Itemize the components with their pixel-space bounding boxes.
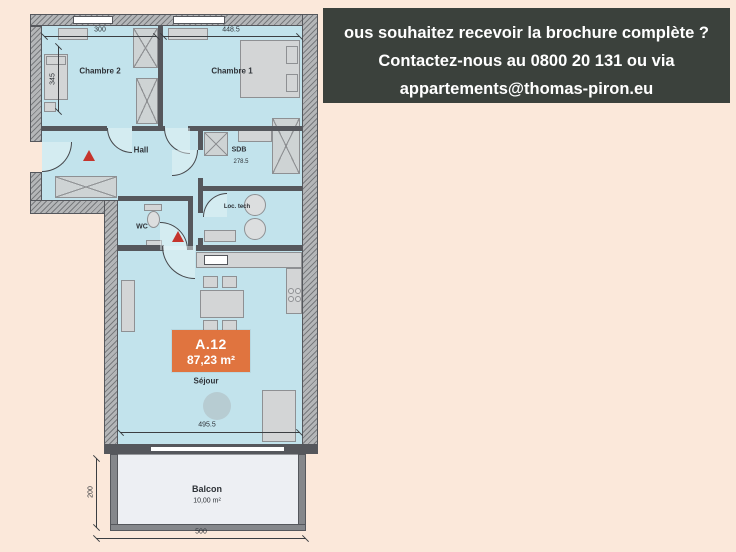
dresser-chambre1: [168, 28, 208, 40]
window-balcony-door: [150, 446, 285, 452]
room-label-chambre1: Chambre 1: [211, 67, 252, 76]
vanity-sdb: [238, 130, 272, 142]
wc-cistern: [144, 204, 162, 211]
dimension-balcon-depth: 200: [88, 486, 95, 498]
shower-sdb: [204, 132, 228, 156]
room-label-chambre2: Chambre 2: [79, 67, 120, 76]
wall-loc-left-1: [198, 191, 203, 213]
wall-hall-top-1: [42, 126, 107, 131]
dimension-chambre2-depth: 345: [50, 73, 57, 85]
wall-sejour-left: [104, 200, 118, 452]
unit-code: A.12: [172, 336, 250, 352]
wc-toilet: [147, 211, 160, 228]
banner-line-1: ous souhaitez recevoir la brochure compl…: [323, 19, 730, 47]
tv-cabinet: [262, 390, 296, 442]
pillow2-chambre1: [286, 74, 298, 92]
balcon-area-label: 10,00 m²: [193, 498, 221, 505]
dimension-sdb: 278.5: [233, 159, 248, 165]
banner-email: appartements@thomas-piron.eu: [323, 75, 730, 103]
wall-wc-top: [118, 196, 192, 201]
room-label-balcon: Balcon: [192, 484, 222, 494]
rug: [203, 392, 231, 420]
dimline-chambre2-depth: [58, 46, 59, 112]
dimline-balcon-depth: [96, 458, 97, 528]
unit-area: 87,23 m²: [172, 353, 250, 367]
wall-sejour-top-2: [196, 245, 302, 251]
room-label-sdb: SDB: [232, 147, 247, 154]
dimension-balcon-width: 500: [195, 529, 207, 536]
brochure-banner: ous souhaitez recevoir la brochure compl…: [323, 8, 730, 103]
window-chambre2: [73, 16, 113, 24]
wall-sdb-bottom: [198, 186, 302, 191]
dimline-sejour-width: [120, 432, 300, 433]
room-label-sejour: Séjour: [194, 377, 219, 386]
banner-line-2: Contactez-nous au 0800 20 131 ou via: [323, 47, 730, 75]
kitchen-sink: [204, 255, 228, 265]
dimline-balcon-width: [96, 538, 306, 539]
window-chambre1: [173, 16, 225, 24]
nightstand-chambre2: [44, 102, 56, 112]
room-label-loctech: Loc. tech: [224, 204, 250, 210]
stove-burner-3: [288, 296, 294, 302]
dimline-chambre1-width: [163, 36, 300, 37]
dining-chair-1: [203, 276, 218, 288]
dimension-sejour-width: 495.5: [198, 422, 216, 429]
wall-right: [302, 14, 318, 454]
dimension-chambre1-width: 448.5: [222, 27, 240, 34]
hall-closet: [55, 176, 117, 198]
pillow-chambre2: [46, 56, 66, 65]
balcony-wall-right: [298, 454, 306, 528]
unit-badge: A.12 87,23 m²: [172, 330, 250, 372]
screenshot-stage: Chambre 2 Chambre 1 Hall SDB 278.5 WC Lo…: [0, 0, 736, 552]
balcony-wall-bottom: [110, 524, 306, 531]
dimension-chambre2-width: 300: [94, 27, 106, 34]
balcony-wall-left: [110, 454, 118, 528]
stove-burner-2: [295, 288, 301, 294]
sofa: [121, 280, 135, 332]
wall-sdb-left-1: [198, 131, 203, 150]
dimline-chambre2-width: [44, 36, 157, 37]
dining-chair-2: [222, 276, 237, 288]
dresser-chambre2: [58, 28, 88, 40]
loctech-shelf: [204, 230, 236, 242]
wardrobe-lower: [136, 78, 158, 124]
room-label-wc: WC: [136, 224, 148, 231]
wall-hall-top-3: [188, 126, 302, 131]
entrance-marker-icon: [83, 150, 95, 161]
stove-burner-4: [295, 296, 301, 302]
dining-table: [200, 290, 244, 318]
wall-wc-right: [188, 196, 193, 250]
wall-sejour-top-1: [118, 245, 164, 251]
wall-left-upper: [30, 26, 42, 142]
room-label-hall: Hall: [134, 146, 149, 155]
pillow1-chambre1: [286, 46, 298, 64]
stove-burner-1: [288, 288, 294, 294]
wall-chambre-divider: [158, 26, 163, 126]
wc-marker-icon: [172, 231, 184, 242]
wall-hall-top-2: [132, 126, 165, 131]
dryer-icon: [244, 218, 266, 240]
